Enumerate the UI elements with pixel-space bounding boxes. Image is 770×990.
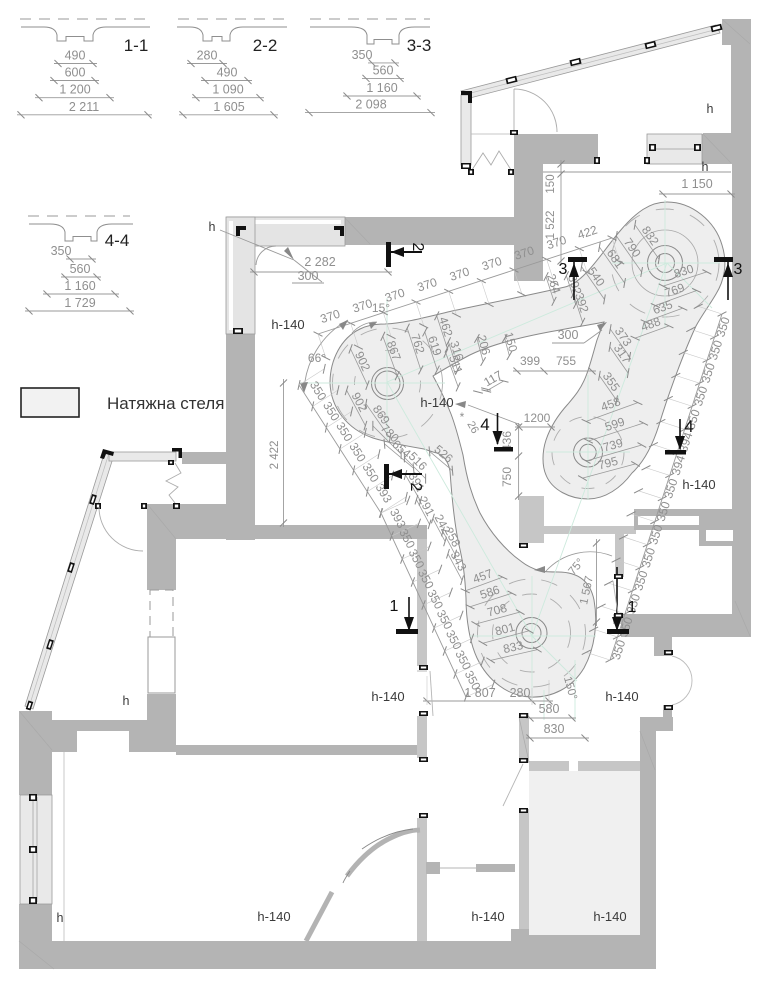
svg-text:h-140: h-140 (593, 909, 626, 924)
svg-text:150: 150 (545, 174, 557, 193)
svg-text:h: h (209, 220, 216, 234)
svg-text:490: 490 (65, 49, 86, 63)
svg-text:3: 3 (734, 261, 743, 278)
svg-text:h-140: h-140 (371, 689, 404, 704)
svg-text:1-1: 1-1 (124, 36, 149, 55)
svg-text:3-3: 3-3 (407, 36, 432, 55)
svg-text:580: 580 (539, 702, 560, 716)
svg-text:h: h (702, 160, 709, 174)
svg-text:300: 300 (298, 269, 319, 283)
svg-text:4: 4 (684, 417, 693, 436)
svg-text:2-2: 2-2 (253, 36, 278, 55)
svg-text:h-140: h-140 (420, 395, 453, 410)
svg-text:1 200: 1 200 (59, 83, 90, 97)
svg-text:1 729: 1 729 (64, 296, 95, 310)
svg-text:h-140: h-140 (271, 317, 304, 332)
svg-text:2 098: 2 098 (355, 98, 386, 112)
svg-text:750: 750 (500, 467, 514, 487)
svg-text:399: 399 (520, 354, 540, 368)
svg-text:280: 280 (197, 49, 218, 63)
svg-text:1: 1 (628, 599, 637, 616)
svg-text:600: 600 (65, 66, 86, 80)
svg-text:350: 350 (352, 48, 373, 62)
svg-text:15°: 15° (372, 301, 390, 315)
svg-text:2 282: 2 282 (304, 255, 335, 269)
svg-text:h: h (57, 911, 64, 925)
svg-text:h: h (123, 694, 130, 708)
svg-text:h-140: h-140 (605, 689, 638, 704)
svg-text:280: 280 (510, 686, 531, 700)
svg-text:830: 830 (544, 722, 565, 736)
svg-text:1 160: 1 160 (64, 279, 95, 293)
svg-text:h: h (707, 102, 714, 116)
svg-text:2: 2 (409, 243, 426, 252)
svg-text:2 211: 2 211 (69, 100, 99, 114)
svg-text:560: 560 (373, 63, 394, 77)
svg-text:1 605: 1 605 (213, 100, 244, 114)
svg-text:560: 560 (70, 262, 91, 276)
svg-text:3: 3 (559, 261, 568, 278)
svg-text:1 160: 1 160 (366, 81, 397, 95)
svg-text:1 090: 1 090 (212, 83, 243, 97)
svg-text:h-140: h-140 (257, 909, 290, 924)
svg-text:1: 1 (390, 598, 399, 615)
svg-text:1 150: 1 150 (681, 177, 712, 191)
svg-text:2: 2 (407, 483, 424, 492)
svg-text:490: 490 (217, 66, 238, 80)
svg-text:*: * (460, 410, 465, 424)
svg-text:2 422: 2 422 (269, 441, 281, 470)
svg-text:350: 350 (51, 244, 72, 258)
svg-text:4-4: 4-4 (105, 231, 130, 250)
svg-text:1200: 1200 (524, 411, 551, 425)
svg-text:h-140: h-140 (471, 909, 504, 924)
svg-text:1 807: 1 807 (464, 686, 495, 700)
svg-text:755: 755 (556, 354, 576, 368)
svg-text:300: 300 (558, 328, 579, 342)
svg-text:1 522: 1 522 (545, 211, 557, 240)
svg-text:4: 4 (480, 415, 489, 434)
svg-text:h-140: h-140 (682, 477, 715, 492)
svg-text:66°: 66° (308, 351, 326, 365)
svg-text:Натяжна стеля: Натяжна стеля (107, 394, 224, 413)
